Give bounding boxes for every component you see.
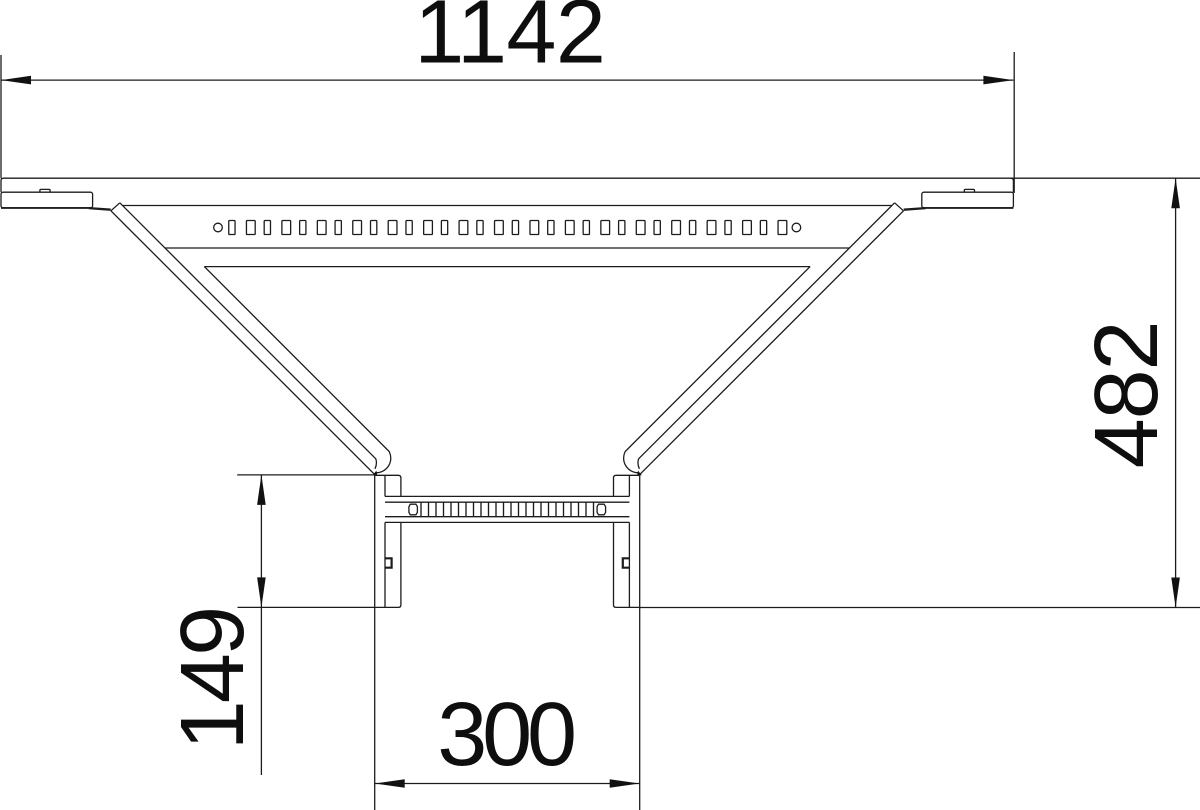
svg-text:149: 149 bbox=[163, 606, 263, 751]
svg-text:482: 482 bbox=[1077, 320, 1177, 468]
svg-text:1142: 1142 bbox=[414, 0, 606, 83]
svg-text:300: 300 bbox=[437, 685, 577, 785]
